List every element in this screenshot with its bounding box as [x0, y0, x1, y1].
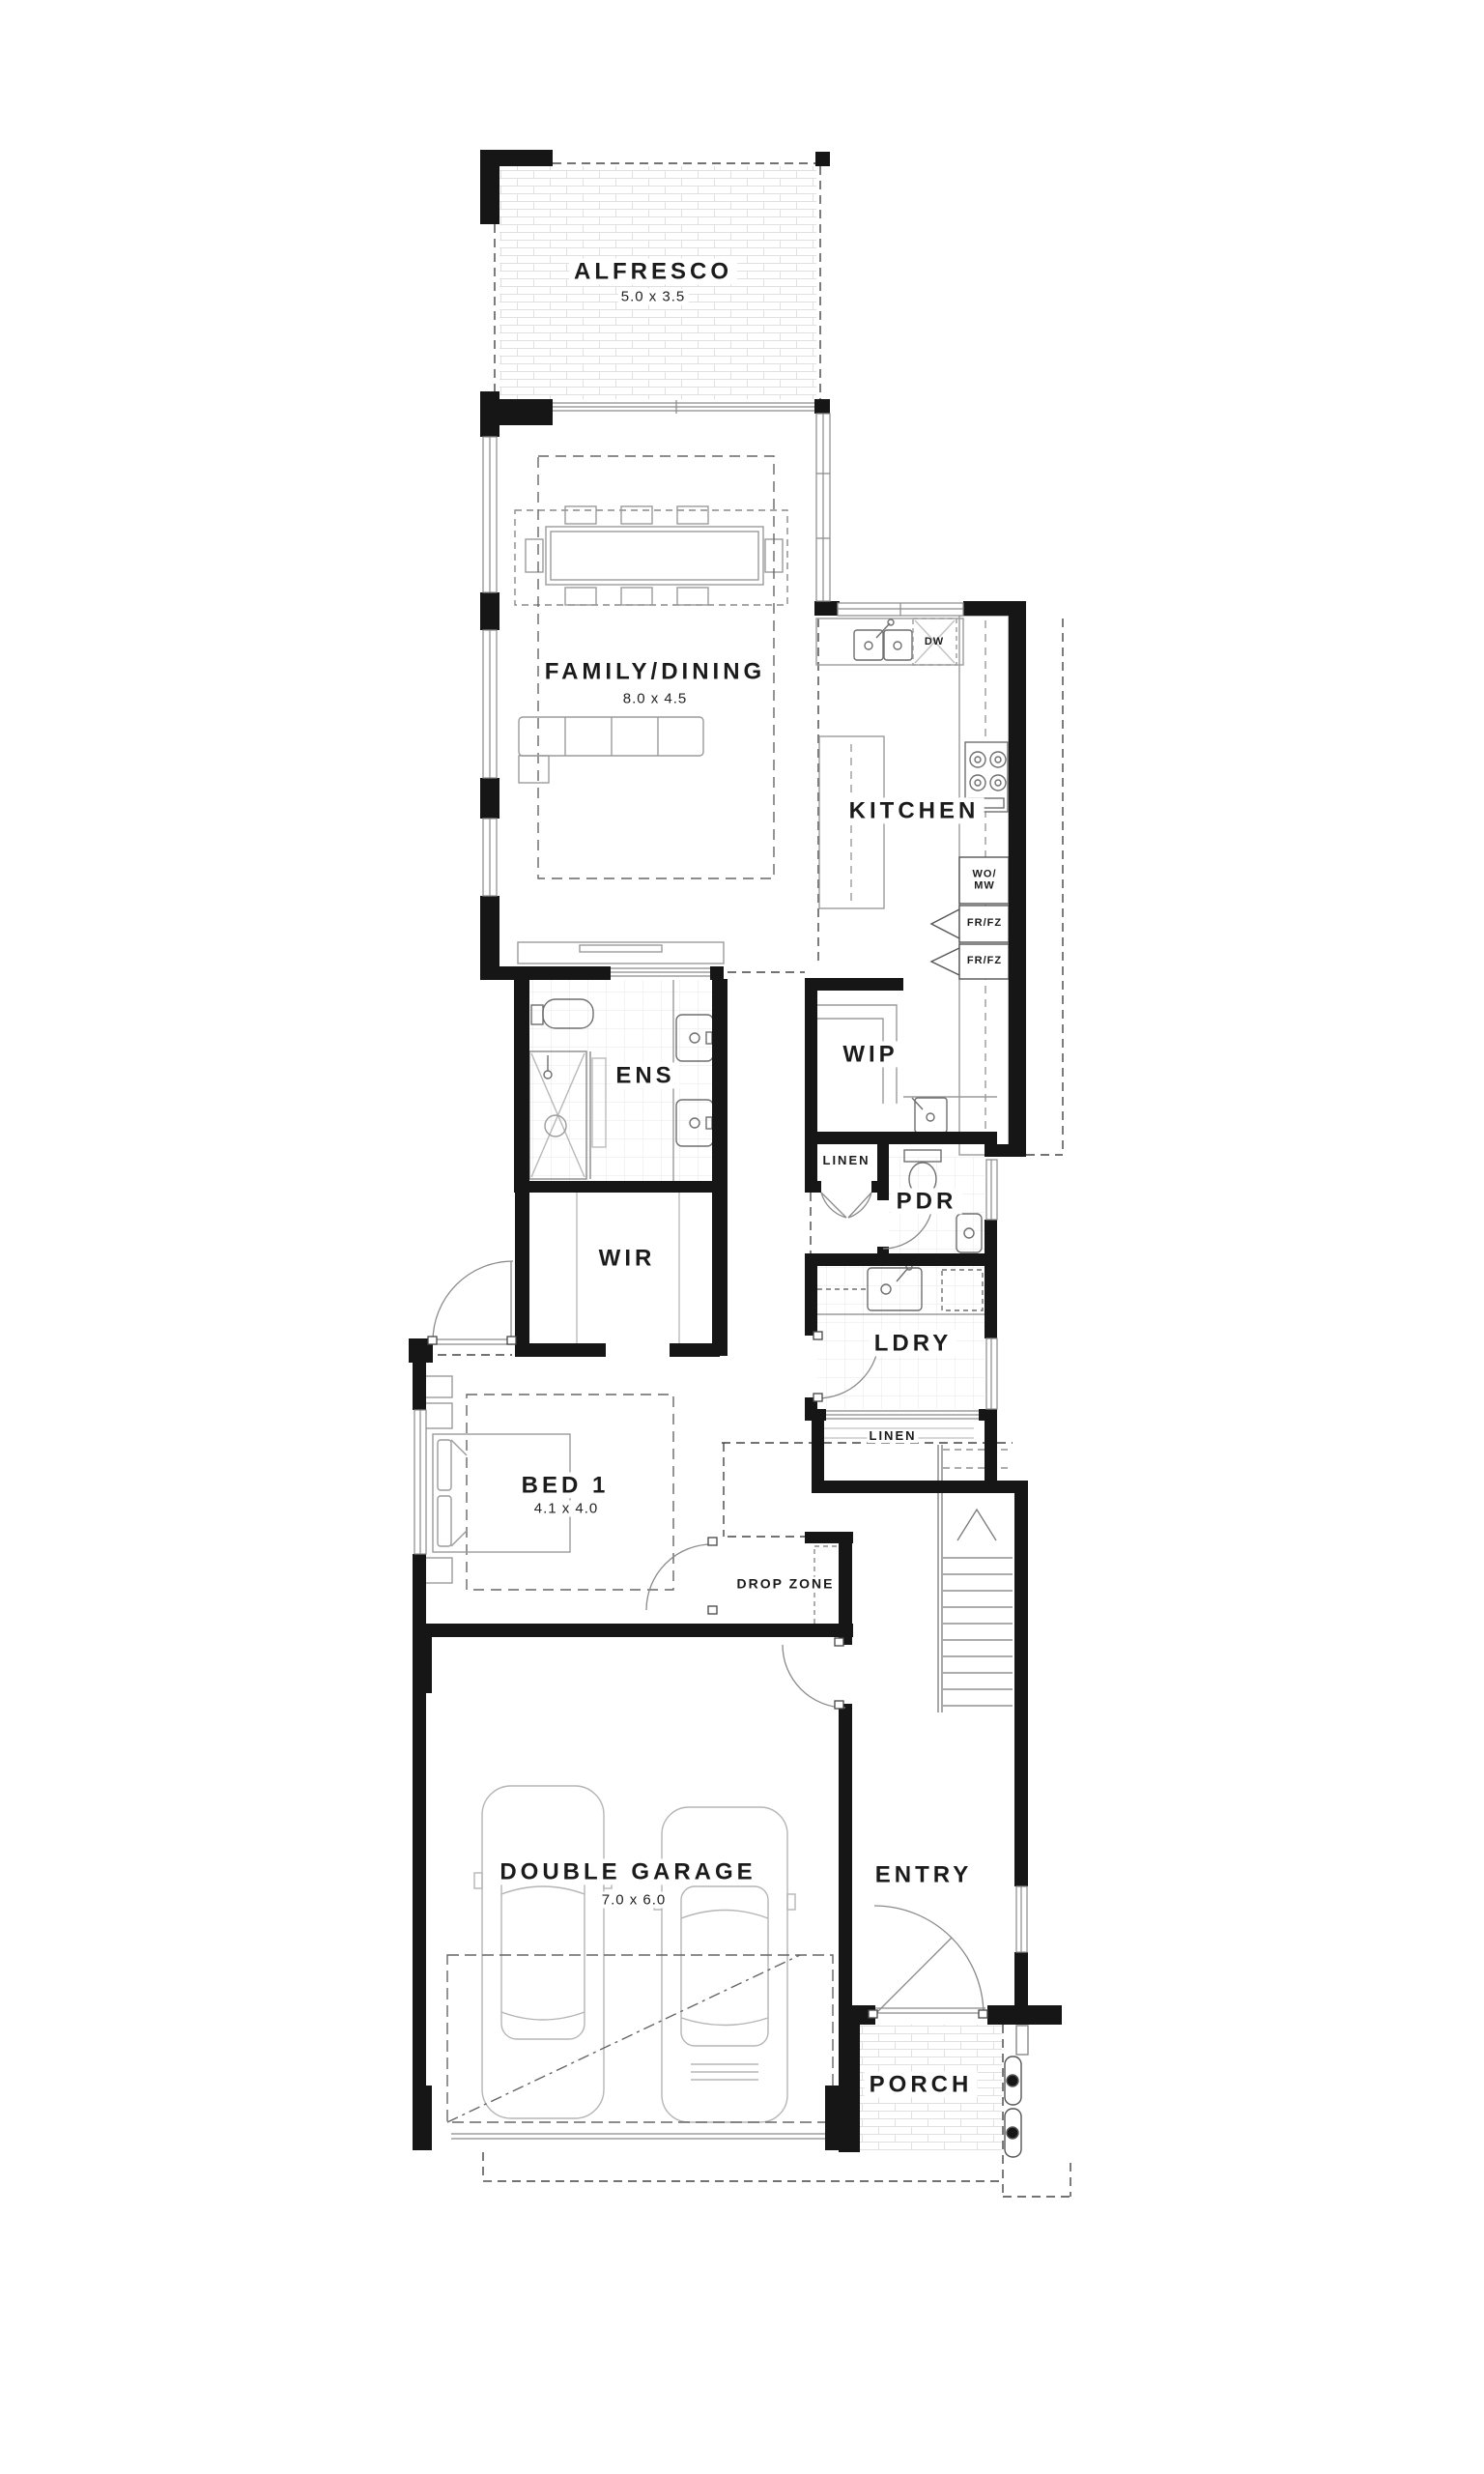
mw-line: MW [973, 880, 997, 892]
fridge-door-arrow-1 [931, 909, 959, 938]
garage-door-zone [447, 1955, 833, 2122]
room-label-bed1: BED 1 [517, 1472, 614, 1498]
room-label-wip: WIP [838, 1041, 902, 1067]
wo-line: WO/ [973, 869, 997, 880]
appliance-label-wall-oven-microwave: WO/ MW [973, 869, 997, 891]
room-dims-family-dining: 8.0 x 4.5 [620, 691, 691, 707]
room-dims-garage: 7.0 x 6.0 [599, 1892, 670, 1909]
floor-finishes [499, 166, 1002, 2150]
room-label-kitchen: KITCHEN [844, 797, 985, 823]
linen-double-doors [821, 1193, 871, 1218]
floor-plan: ALFRESCO 5.0 x 3.5 FAMILY/DINING 8.0 x 4… [0, 0, 1484, 2474]
appliance-label-fridge-1: FR/FZ [967, 918, 1002, 930]
car-1 [474, 1786, 612, 2118]
car-2 [654, 1807, 795, 2122]
room-label-family-dining: FAMILY/DINING [540, 658, 770, 684]
room-dims-bed1: 4.1 x 4.0 [531, 1501, 602, 1517]
room-label-porch: PORCH [865, 2071, 978, 2097]
room-label-entry: ENTRY [870, 1861, 977, 1887]
bed1-courtyard-door [433, 1261, 513, 1341]
sofa [519, 717, 703, 783]
pantry-sink [912, 1098, 947, 1133]
garage-entry-door [783, 1645, 845, 1708]
walls [409, 150, 1062, 2152]
bed1-door [646, 1544, 712, 1610]
appliance-label-fridge-2: FR/FZ [967, 956, 1002, 967]
plan-drawing [0, 0, 1484, 2474]
porch-pillars [1005, 2026, 1028, 2157]
tv-unit [518, 942, 724, 964]
room-label-pdr: PDR [892, 1188, 962, 1214]
front-door [874, 1906, 984, 2015]
room-label-drop-zone: DROP ZONE [734, 1577, 838, 1592]
dining-setting [515, 506, 787, 605]
appliance-label-dishwasher: DW [925, 637, 944, 648]
room-dims-alfresco: 5.0 x 3.5 [618, 289, 689, 305]
room-label-linen-upper: LINEN [821, 1154, 872, 1167]
room-label-wir: WIR [594, 1245, 661, 1271]
fridge-door-arrow-2 [931, 948, 959, 975]
room-label-ldry: LDRY [870, 1330, 956, 1356]
room-label-linen-lower: LINEN [868, 1429, 919, 1443]
kitchen-sink [854, 619, 912, 660]
room-label-ens: ENS [611, 1062, 679, 1088]
room-label-garage: DOUBLE GARAGE [495, 1858, 760, 1884]
room-label-alfresco: ALFRESCO [569, 258, 737, 284]
